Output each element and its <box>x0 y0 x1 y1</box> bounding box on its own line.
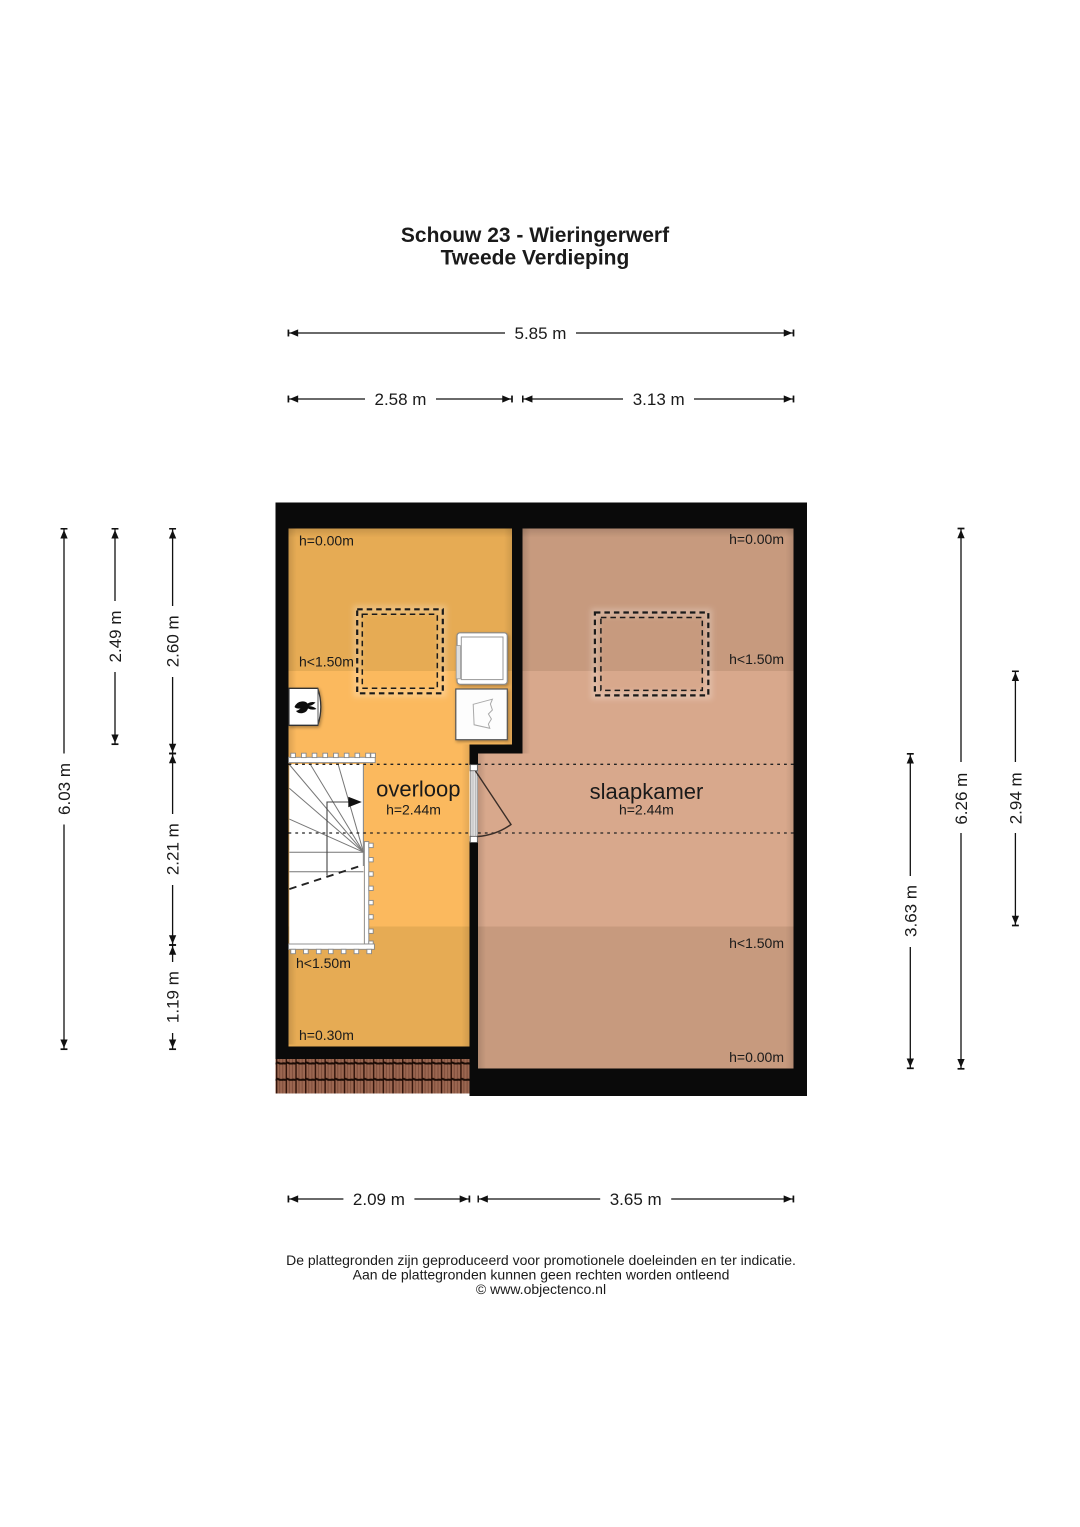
svg-text:h=2.44m: h=2.44m <box>386 802 441 818</box>
svg-text:h<1.50m: h<1.50m <box>296 955 351 971</box>
svg-text:© www.objectenco.nl: © www.objectenco.nl <box>476 1281 606 1297</box>
svg-text:slaapkamer: slaapkamer <box>590 779 704 804</box>
svg-text:h<1.50m: h<1.50m <box>299 654 354 670</box>
svg-text:Tweede Verdieping: Tweede Verdieping <box>441 247 630 270</box>
svg-text:3.13 m: 3.13 m <box>633 390 685 409</box>
svg-text:6.26 m: 6.26 m <box>952 773 971 825</box>
svg-text:h<1.50m: h<1.50m <box>729 651 784 667</box>
svg-text:5.85 m: 5.85 m <box>515 324 567 343</box>
svg-text:1.19 m: 1.19 m <box>164 971 183 1023</box>
svg-text:2.60 m: 2.60 m <box>164 615 183 667</box>
svg-text:h=0.30m: h=0.30m <box>299 1027 354 1043</box>
svg-text:h=0.00m: h=0.00m <box>729 531 784 547</box>
svg-text:Schouw 23 - Wieringerwerf: Schouw 23 - Wieringerwerf <box>401 224 670 247</box>
svg-text:2.94 m: 2.94 m <box>1006 772 1025 824</box>
svg-text:h=2.44m: h=2.44m <box>619 802 674 818</box>
svg-text:6.03 m: 6.03 m <box>55 763 74 815</box>
svg-text:2.21 m: 2.21 m <box>164 823 183 875</box>
svg-text:h=0.00m: h=0.00m <box>729 1049 784 1065</box>
svg-text:2.49 m: 2.49 m <box>106 611 125 663</box>
svg-text:overloop: overloop <box>376 777 460 802</box>
svg-text:h=0.00m: h=0.00m <box>299 533 354 549</box>
svg-text:3.65 m: 3.65 m <box>610 1190 662 1209</box>
svg-text:2.58 m: 2.58 m <box>375 390 427 409</box>
svg-text:3.63 m: 3.63 m <box>901 885 920 937</box>
svg-text:h<1.50m: h<1.50m <box>729 935 784 951</box>
svg-text:2.09 m: 2.09 m <box>353 1190 405 1209</box>
